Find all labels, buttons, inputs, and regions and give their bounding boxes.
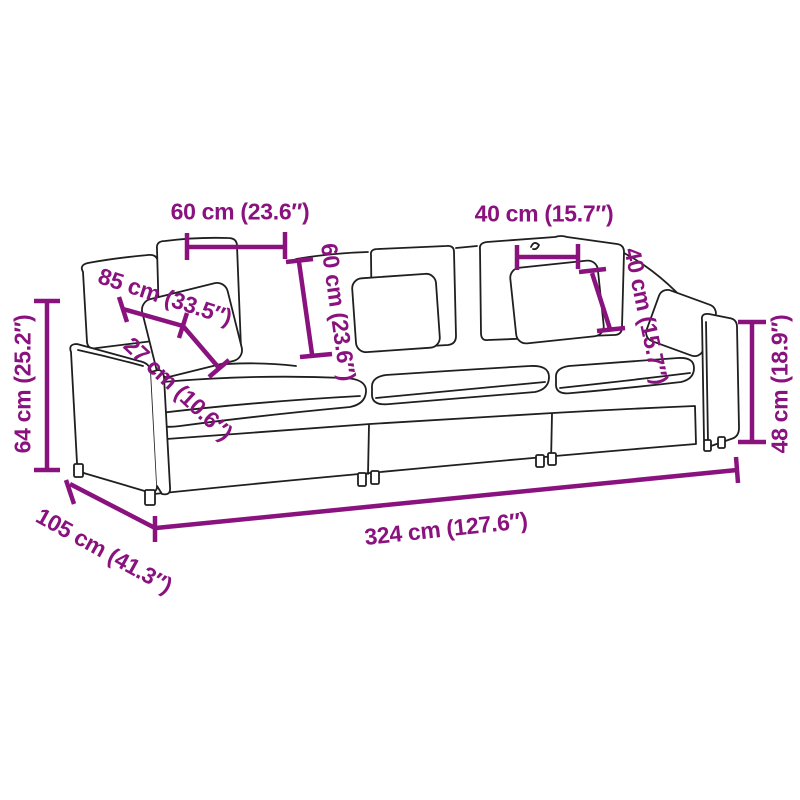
seat-cushion-2 [372, 366, 549, 404]
dim-line-overall-height [34, 301, 60, 470]
pillow-middle [352, 273, 441, 353]
sofa-dimension-diagram: 60 cm (23.6″) 40 cm (15.7″) 60 cm (23.6″… [0, 0, 800, 800]
dimension-label-armrest-height: 48 cm (18.9″) [767, 315, 794, 454]
module-seam-left [368, 425, 369, 474]
dim-line-armrest-height [738, 322, 766, 442]
dimension-label-overall-height: 64 cm (25.2″) [10, 315, 37, 454]
sofa-line-drawing [0, 0, 800, 800]
dimension-label-pillow-width: 40 cm (15.7″) [475, 201, 614, 228]
right-armrest [702, 314, 739, 447]
dimension-label-back-cushion-width: 60 cm (23.6″) [171, 199, 310, 226]
